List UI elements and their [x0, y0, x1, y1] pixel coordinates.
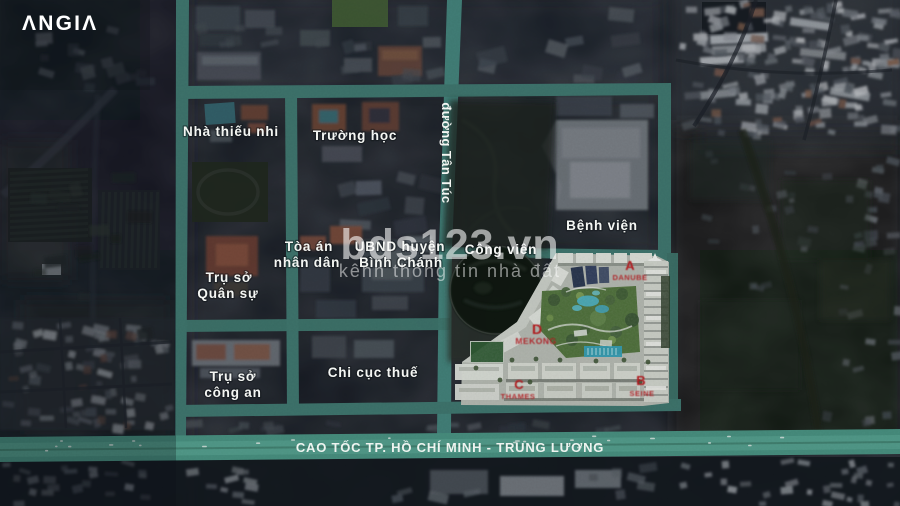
svg-text:ΛNGIΛ: ΛNGIΛ — [22, 12, 98, 35]
svg-text:Quân sự: Quân sự — [197, 286, 258, 301]
svg-text:công an: công an — [204, 385, 261, 400]
svg-text:Tòa án: Tòa án — [285, 239, 333, 254]
svg-text:Trụ sở: Trụ sở — [206, 270, 253, 285]
svg-text:đường Tân Túc: đường Tân Túc — [439, 102, 454, 203]
svg-text:nhân dân: nhân dân — [274, 255, 340, 270]
svg-text:Trụ sở: Trụ sở — [210, 369, 257, 384]
svg-text:Nhà thiếu nhi: Nhà thiếu nhi — [183, 124, 279, 139]
svg-text:Trường học: Trường học — [313, 128, 397, 143]
svg-text:CAO TỐC TP. HỒ CHÍ MINH - TRUN: CAO TỐC TP. HỒ CHÍ MINH - TRUNG LƯƠNG — [296, 440, 604, 455]
svg-text:Bệnh viện: Bệnh viện — [566, 218, 638, 233]
svg-text:kênh thông tin nhà đất: kênh thông tin nhà đất — [339, 261, 561, 281]
svg-text:Chi cục thuế: Chi cục thuế — [328, 365, 419, 380]
